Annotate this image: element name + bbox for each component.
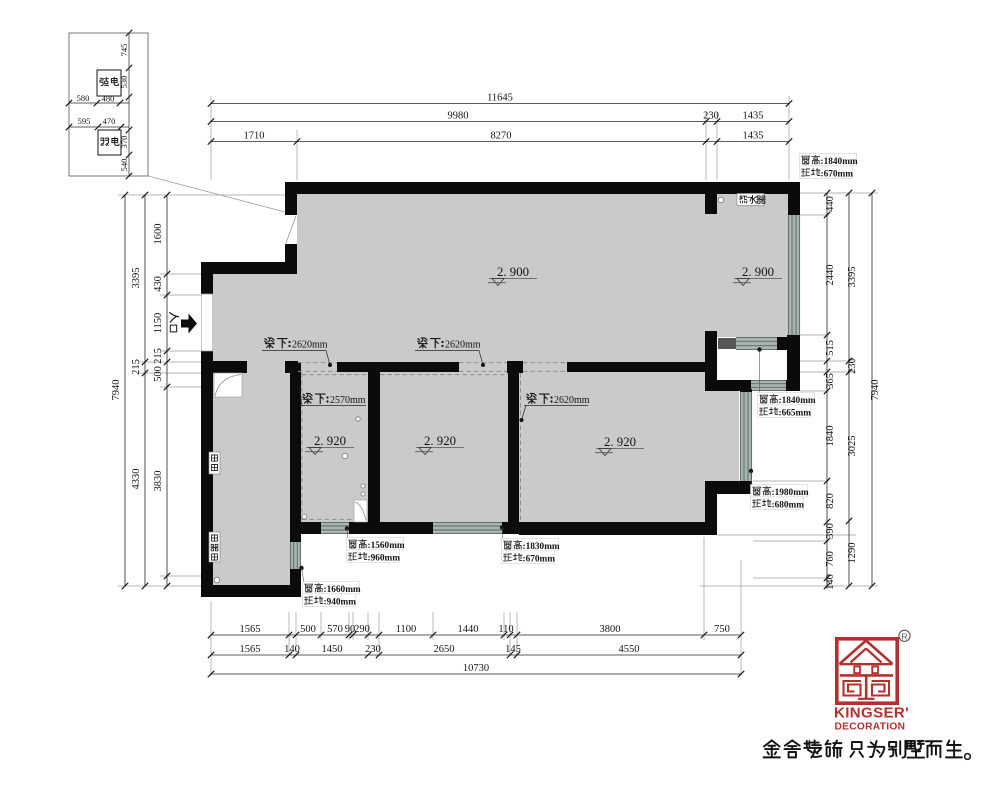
svg-text:3395: 3395 (131, 268, 142, 289)
svg-text:1600: 1600 (153, 224, 164, 245)
svg-text:1100: 1100 (396, 624, 417, 635)
svg-text:230: 230 (703, 111, 719, 122)
svg-text:7940: 7940 (111, 380, 122, 401)
svg-text:2. 900: 2. 900 (742, 265, 774, 279)
svg-text:145: 145 (505, 644, 521, 655)
svg-text:9980: 9980 (448, 111, 469, 122)
svg-text:R: R (901, 632, 907, 642)
svg-text::670mm: :670mm (821, 169, 854, 179)
svg-text:4550: 4550 (619, 644, 640, 655)
svg-text:3830: 3830 (153, 471, 164, 492)
svg-text:1435: 1435 (743, 131, 764, 142)
svg-text::1830mm: :1830mm (523, 542, 560, 552)
svg-text:2440: 2440 (825, 265, 836, 286)
svg-text:4330: 4330 (131, 469, 142, 490)
svg-text:2. 920: 2. 920 (314, 434, 346, 448)
svg-text:515: 515 (825, 340, 836, 356)
svg-text:750: 750 (714, 624, 730, 635)
svg-text:2620mm: 2620mm (554, 395, 590, 406)
svg-text:110: 110 (498, 624, 513, 635)
svg-text:10730: 10730 (463, 663, 489, 674)
svg-text:570: 570 (327, 624, 343, 635)
svg-text:3025: 3025 (847, 436, 858, 457)
svg-text:140: 140 (284, 644, 300, 655)
svg-text:1440: 1440 (458, 624, 479, 635)
svg-text::1660mm: :1660mm (324, 585, 361, 595)
svg-text:580: 580 (77, 93, 90, 103)
svg-text:595: 595 (78, 116, 91, 126)
svg-text::680mm: :680mm (772, 500, 805, 510)
svg-text:140: 140 (825, 574, 836, 590)
svg-text:7940: 7940 (870, 380, 881, 401)
svg-text:1565: 1565 (240, 624, 261, 635)
svg-text:540: 540 (119, 159, 129, 172)
svg-text::1980mm: :1980mm (772, 488, 809, 498)
svg-text:2. 920: 2. 920 (424, 434, 456, 448)
svg-text:2. 920: 2. 920 (604, 435, 636, 449)
svg-text:1150: 1150 (153, 313, 164, 334)
svg-text::960mm: :960mm (368, 553, 401, 563)
svg-text::670mm: :670mm (523, 554, 556, 564)
svg-text:440: 440 (825, 196, 836, 212)
svg-text:DECORATION: DECORATION (835, 722, 906, 733)
svg-text:500: 500 (300, 624, 316, 635)
svg-text:1565: 1565 (240, 644, 261, 655)
svg-text::665mm: :665mm (779, 408, 812, 418)
svg-text:230: 230 (847, 358, 858, 374)
svg-text::1840mm: :1840mm (821, 157, 858, 167)
svg-text:2. 900: 2. 900 (497, 265, 529, 279)
svg-text:745: 745 (119, 44, 129, 57)
svg-text:2650: 2650 (434, 644, 455, 655)
svg-text::1840mm: :1840mm (779, 396, 816, 406)
svg-text:1290: 1290 (847, 543, 858, 564)
svg-text:215: 215 (153, 348, 164, 364)
svg-text:2620mm: 2620mm (292, 340, 328, 351)
svg-text:365: 365 (825, 373, 836, 389)
svg-text:500: 500 (153, 366, 164, 382)
svg-text:1435: 1435 (743, 111, 764, 122)
svg-text:1450: 1450 (322, 644, 343, 655)
svg-text:430: 430 (153, 276, 164, 292)
svg-text:820: 820 (825, 493, 836, 509)
svg-text::1560mm: :1560mm (368, 541, 405, 551)
svg-text:3800: 3800 (600, 624, 621, 635)
svg-text:215: 215 (131, 359, 142, 375)
svg-text:1840: 1840 (825, 426, 836, 447)
svg-text:760: 760 (825, 551, 836, 567)
svg-text:2620mm: 2620mm (445, 340, 481, 351)
svg-text:1710: 1710 (244, 131, 265, 142)
svg-text:470: 470 (103, 116, 116, 126)
svg-text:3395: 3395 (847, 267, 858, 288)
svg-text:290: 290 (354, 624, 370, 635)
svg-text:230: 230 (365, 644, 381, 655)
svg-text::940mm: :940mm (324, 597, 357, 607)
svg-text:390: 390 (825, 523, 836, 539)
svg-text:11645: 11645 (487, 93, 513, 104)
svg-text:2570mm: 2570mm (330, 395, 366, 406)
svg-text:KINGSER': KINGSER' (834, 705, 909, 722)
svg-text:8270: 8270 (491, 131, 512, 142)
